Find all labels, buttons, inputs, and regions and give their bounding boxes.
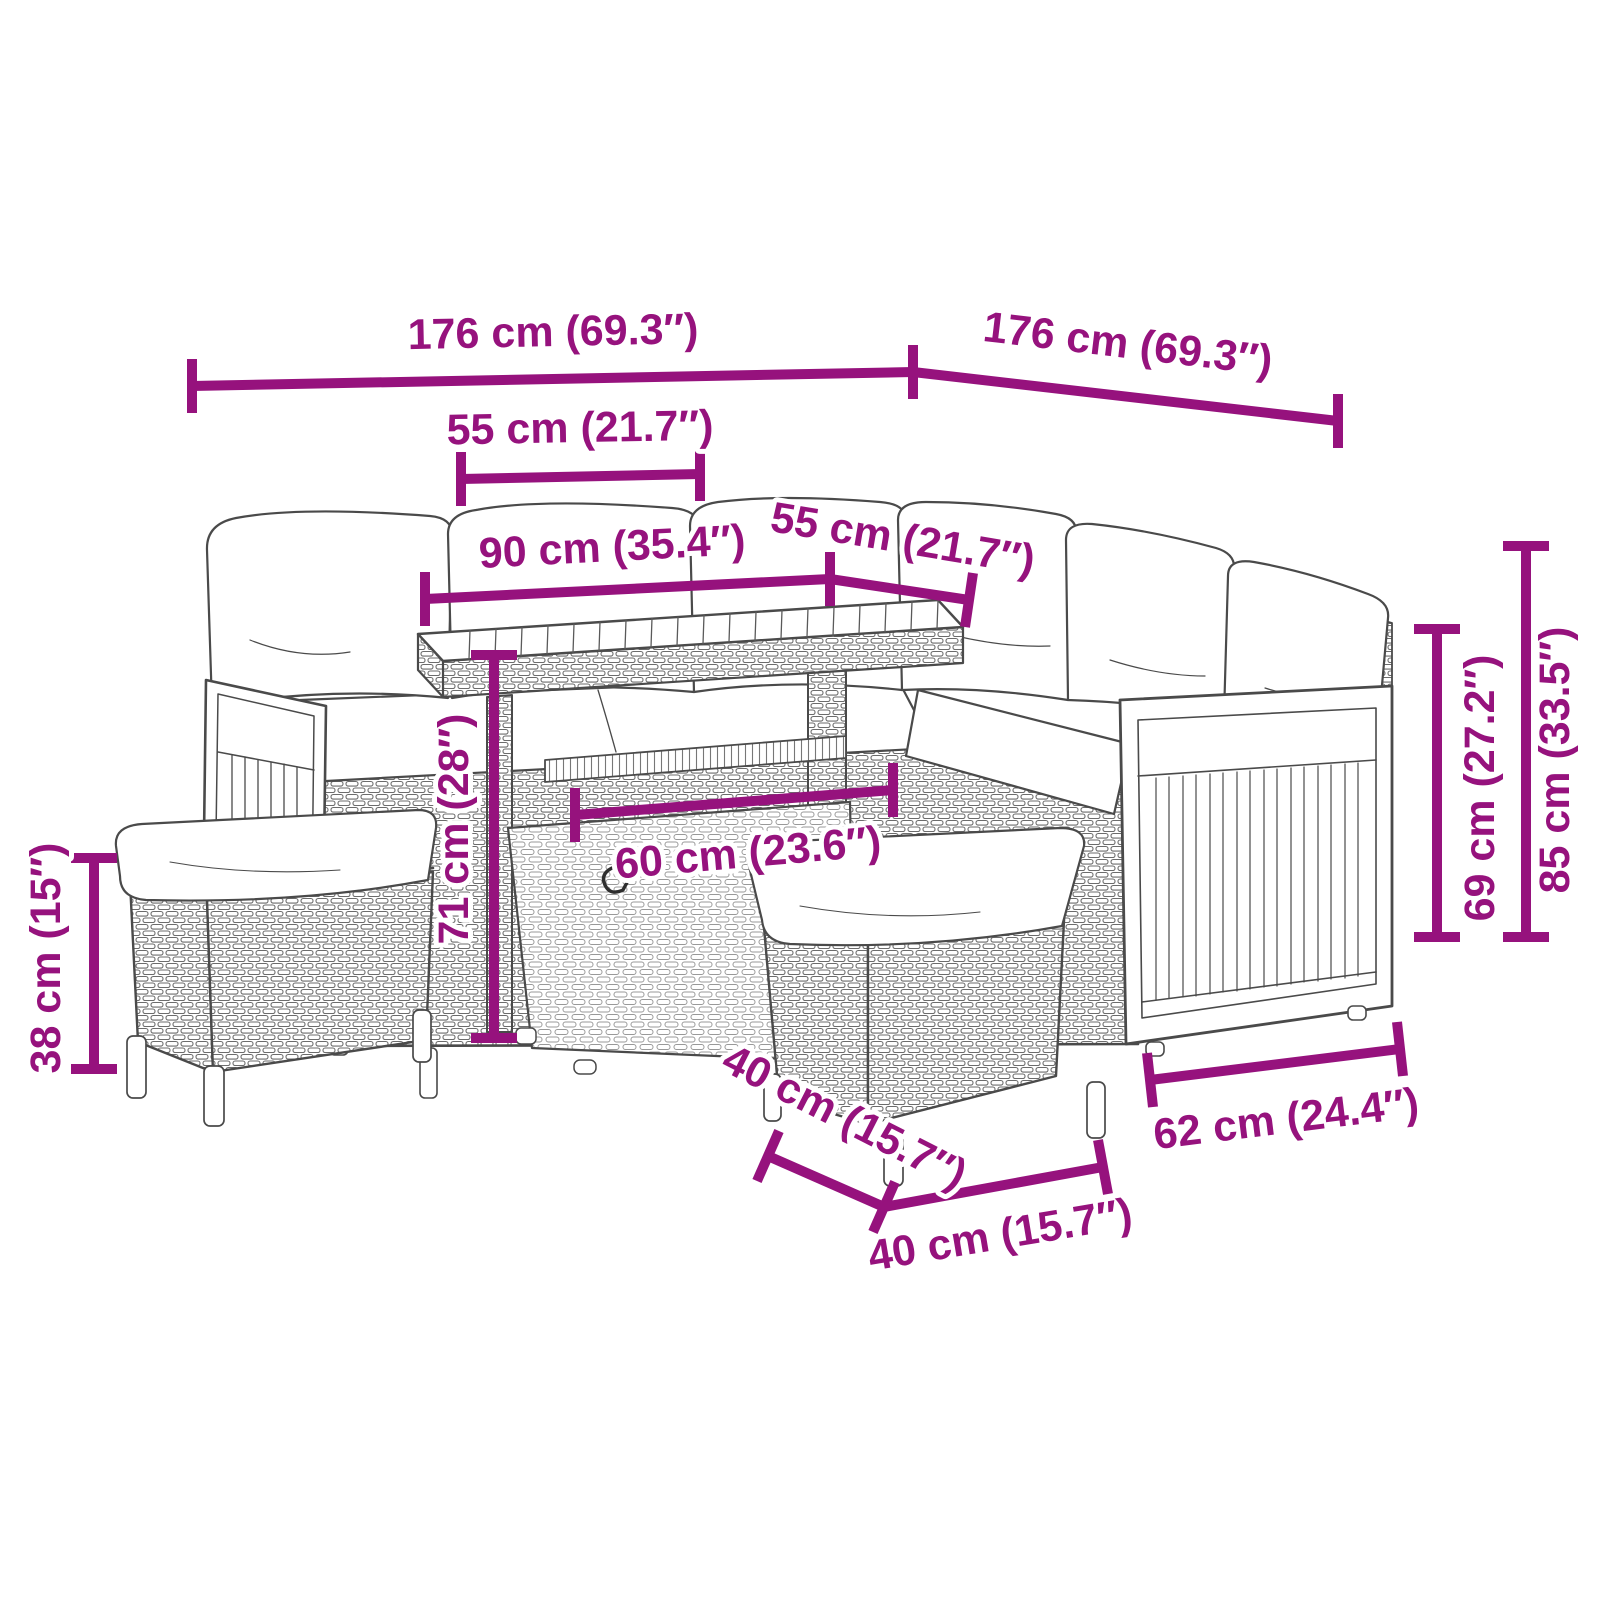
dim-overall-width-left-label: 176 cm (69.3″) xyxy=(407,305,699,359)
dim-overall-depth-right-line xyxy=(913,372,1338,448)
dim-seat-depth-left-label: 55 cm (21.7″) xyxy=(446,402,714,455)
dim-stool-height-line xyxy=(71,858,117,1069)
stool-left-cushion xyxy=(116,810,436,901)
dim-stool-height-label: 38 cm (15″) xyxy=(22,843,70,1074)
dim-seat-depth-left-line xyxy=(461,447,700,506)
stool-left xyxy=(116,810,437,1126)
dim-armrest-height-line xyxy=(1414,629,1460,937)
dim-backrest-height-label: 85 cm (33.5″) xyxy=(1531,627,1579,894)
dim-side-panel-width-label: 62 cm (24.4″) xyxy=(1151,1079,1422,1159)
right-armrest-panel xyxy=(1120,686,1392,1056)
dim-armrest-height-label: 69 cm (27.2″) xyxy=(1456,655,1504,922)
diagram-svg: 176 cm (69.3″) 176 cm (69.3″) 55 cm (21.… xyxy=(0,0,1600,1600)
dim-overall-depth-right-label: 176 cm (69.3″) xyxy=(981,303,1275,385)
dim-table-height-label: 71 cm (28″) xyxy=(430,714,478,945)
dimension-diagram: 176 cm (69.3″) 176 cm (69.3″) 55 cm (21.… xyxy=(0,0,1600,1600)
